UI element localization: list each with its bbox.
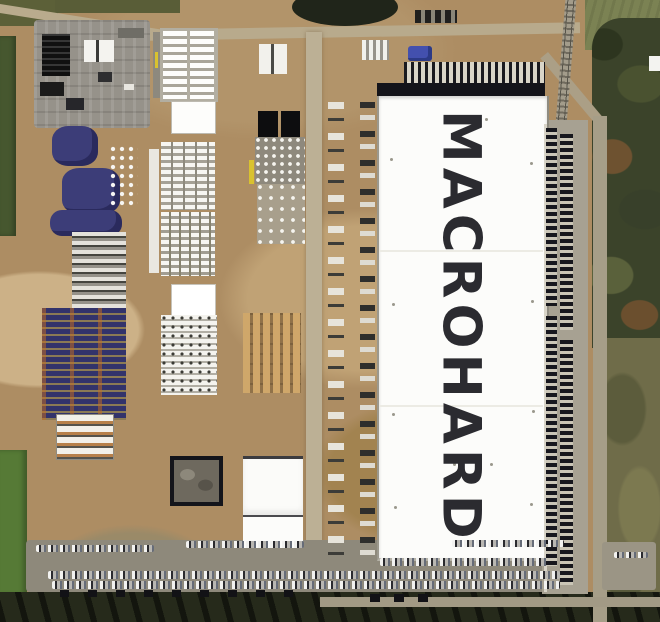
black-material-stack [42,34,70,76]
grey-container [118,28,144,38]
foundation-pad-grid [243,313,301,393]
aerial-photo: MACROHARD [0,0,660,622]
modular-building-center [161,142,215,210]
yellow-crane [249,160,254,184]
equipment-grid-sparse [257,184,305,244]
warehouse-label-area: MACROHARD [377,96,545,558]
material-laydown-strip [328,102,344,557]
dark-trucks-row [60,590,300,597]
parked-trucks-right [614,552,648,558]
dark-equipment [66,98,84,110]
black-material-stack-small [40,82,64,96]
parking-pad-right [602,542,656,590]
white-equipment [124,84,134,90]
parked-cars-dense-row [52,581,560,589]
dark-roof-section [258,111,278,137]
white-tent-building [171,284,216,316]
white-trailers [362,40,389,60]
road-center-vertical [306,32,322,556]
purple-material-stack [52,126,98,166]
trailer-column [546,128,557,306]
module-row-column [190,31,214,99]
warehouse-rooftop-sign: MACROHARD [431,110,492,544]
modular-building-center-south [161,212,215,276]
dark-pond-top-center [292,0,398,26]
narrow-white-building [149,149,159,273]
parked-cars-row [380,558,548,566]
white-vans-parked [110,146,138,206]
parked-cars-row [36,545,154,552]
trailer-column [546,316,557,566]
trailer-column [560,134,573,330]
modular-building-south [161,315,217,395]
building-under-construction [170,456,223,506]
large-white-tent [243,456,303,515]
parked-cars-row [186,541,304,548]
docked-trucks-row [404,62,545,85]
material-laydown-strip [360,102,375,557]
module-row-column [163,31,187,99]
dark-trucks-row [370,594,432,602]
dark-roof-section [281,111,300,137]
building-with-orange-steel [56,414,114,460]
grass-field-left-dark [0,36,16,236]
trucks-top-yard [415,10,457,23]
white-tents-pair [84,40,114,62]
white-tent-building [259,44,287,74]
container-rows [72,232,126,308]
parked-cars-dense-row [48,571,560,579]
white-structure-right-edge [649,56,660,71]
blue-equipment [408,46,432,61]
olive-strip-top [55,0,180,13]
yellow-crane [155,52,158,68]
dark-equipment [98,72,112,82]
parked-cars-row [452,540,564,547]
trailer-column [560,340,573,585]
equipment-grid [255,137,305,184]
orange-material-accents [42,308,126,420]
grass-field-left-bright [0,450,27,595]
white-tent-building [171,101,216,134]
